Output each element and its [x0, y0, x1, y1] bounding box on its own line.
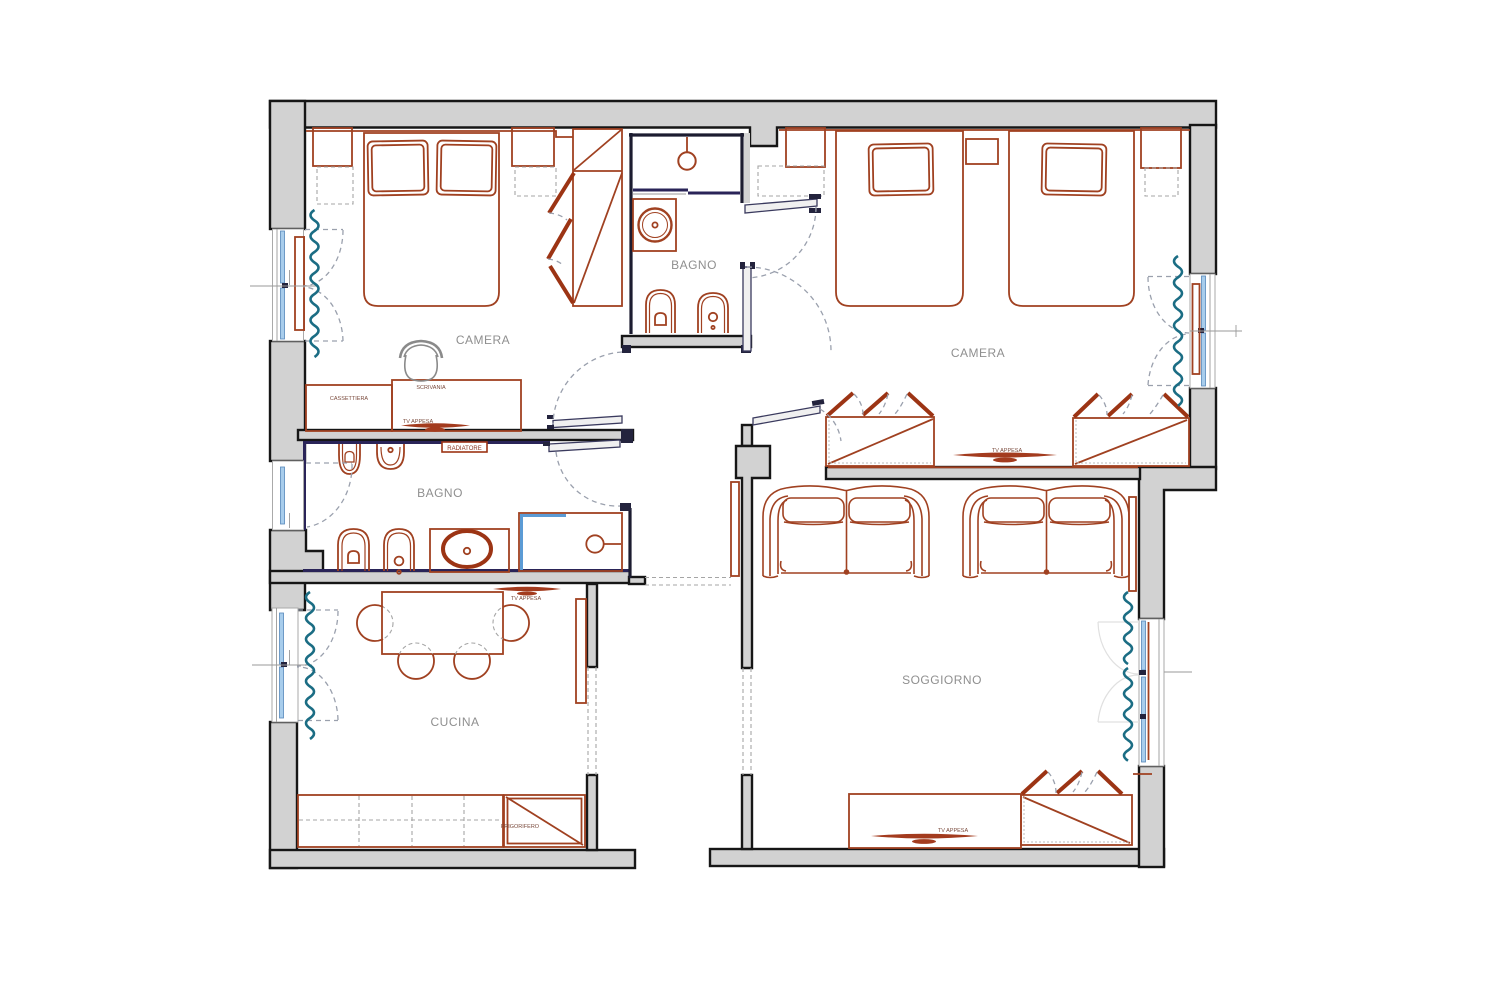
svg-text:TV APPESA: TV APPESA — [403, 419, 434, 425]
svg-text:CUCINA: CUCINA — [430, 715, 479, 729]
svg-text:SOGGIORNO: SOGGIORNO — [902, 673, 982, 687]
svg-text:RADIATORE: RADIATORE — [447, 446, 481, 452]
svg-text:TV APPESA: TV APPESA — [511, 596, 542, 602]
svg-text:BAGNO: BAGNO — [671, 258, 717, 272]
svg-text:BAGNO: BAGNO — [417, 486, 463, 500]
svg-text:SCRIVANIA: SCRIVANIA — [416, 385, 446, 391]
svg-text:CAMERA: CAMERA — [951, 346, 1005, 360]
svg-text:CAMERA: CAMERA — [456, 333, 510, 347]
svg-text:FRIGORIFERO: FRIGORIFERO — [501, 824, 540, 830]
svg-text:TV APPESA: TV APPESA — [938, 828, 969, 834]
svg-text:CASSETTIERA: CASSETTIERA — [330, 396, 369, 402]
svg-text:TV APPESA: TV APPESA — [992, 448, 1023, 454]
